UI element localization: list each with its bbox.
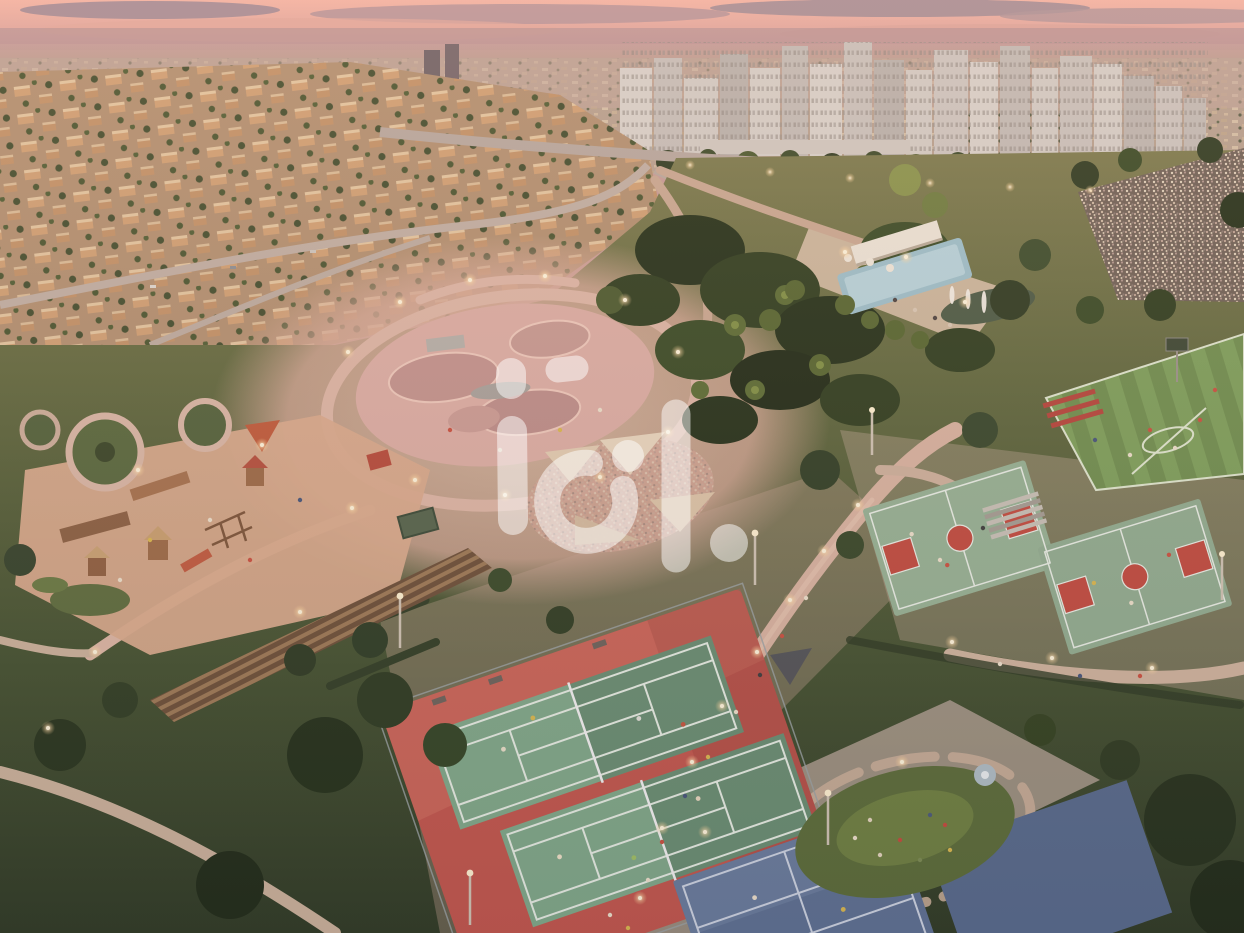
aerial-render: [0, 0, 1244, 933]
watermark-period: [710, 524, 748, 562]
watermark-top-stroke: [558, 368, 576, 370]
watermark-bar-left-bottom: [512, 431, 513, 520]
watermark-ring-dot: [612, 440, 644, 472]
